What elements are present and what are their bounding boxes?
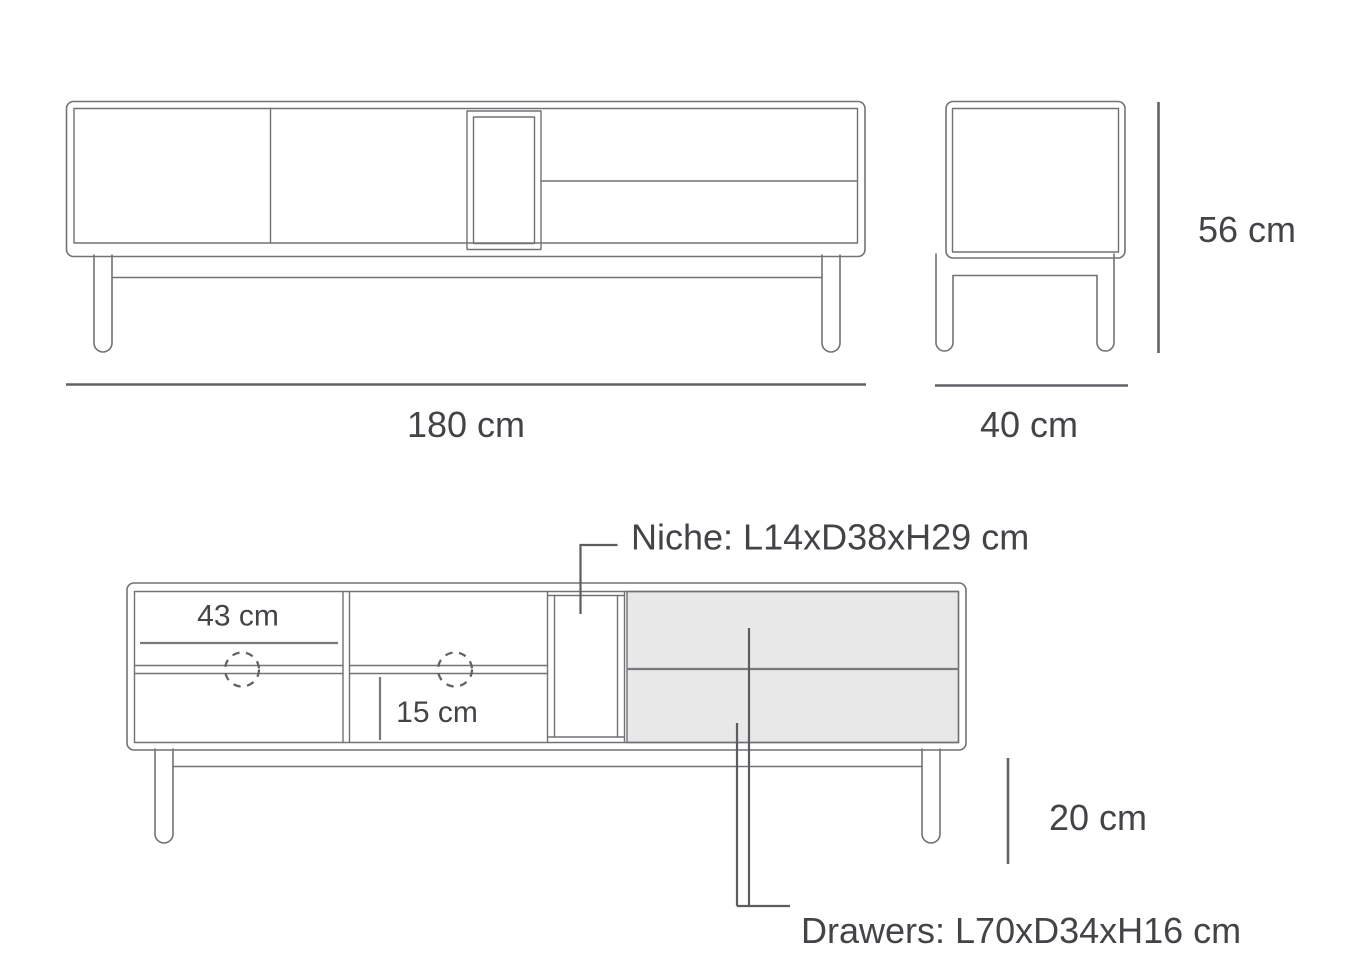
cable-hole-circle-middle — [438, 653, 472, 687]
side-depth-label: 40 cm — [980, 404, 1078, 445]
interior-right-leg — [922, 749, 940, 843]
front-niche-outer — [467, 111, 541, 250]
lower-height-label: 15 cm — [396, 696, 478, 729]
shelf-width-label: 43 cm — [197, 600, 279, 633]
front-body-outline — [67, 102, 866, 257]
front-right-leg — [822, 255, 840, 352]
drawers-shaded-area — [627, 592, 959, 743]
side-body-outline — [946, 102, 1125, 259]
side-body-inner-panel — [953, 109, 1119, 253]
cable-hole-circle-left — [225, 653, 259, 687]
side-view: 40 cm 56 cm — [935, 102, 1296, 446]
niche-label: Niche: L14xD38xH29 cm — [631, 517, 1029, 558]
side-front-leg — [936, 254, 953, 351]
height-label: 56 cm — [1198, 209, 1296, 250]
front-body-inner-panel — [74, 109, 858, 244]
furniture-dimension-diagram: 180 cm 40 cm 56 cm — [0, 0, 1363, 980]
leg-height-label: 20 cm — [1049, 797, 1147, 838]
front-left-leg — [94, 255, 112, 352]
side-back-leg — [1097, 254, 1114, 351]
niche-leader-line — [581, 545, 618, 614]
front-length-label: 180 cm — [407, 404, 525, 445]
diagram-svg: 180 cm 40 cm 56 cm — [0, 0, 1363, 980]
front-view: 180 cm — [66, 102, 866, 446]
interior-left-leg — [155, 749, 173, 843]
interior-detail-view: 43 cm 15 cm Niche: L14xD38xH29 cm Drawer… — [127, 517, 1241, 952]
drawers-label: Drawers: L70xD34xH16 cm — [801, 910, 1241, 951]
front-niche-inner — [474, 117, 535, 244]
